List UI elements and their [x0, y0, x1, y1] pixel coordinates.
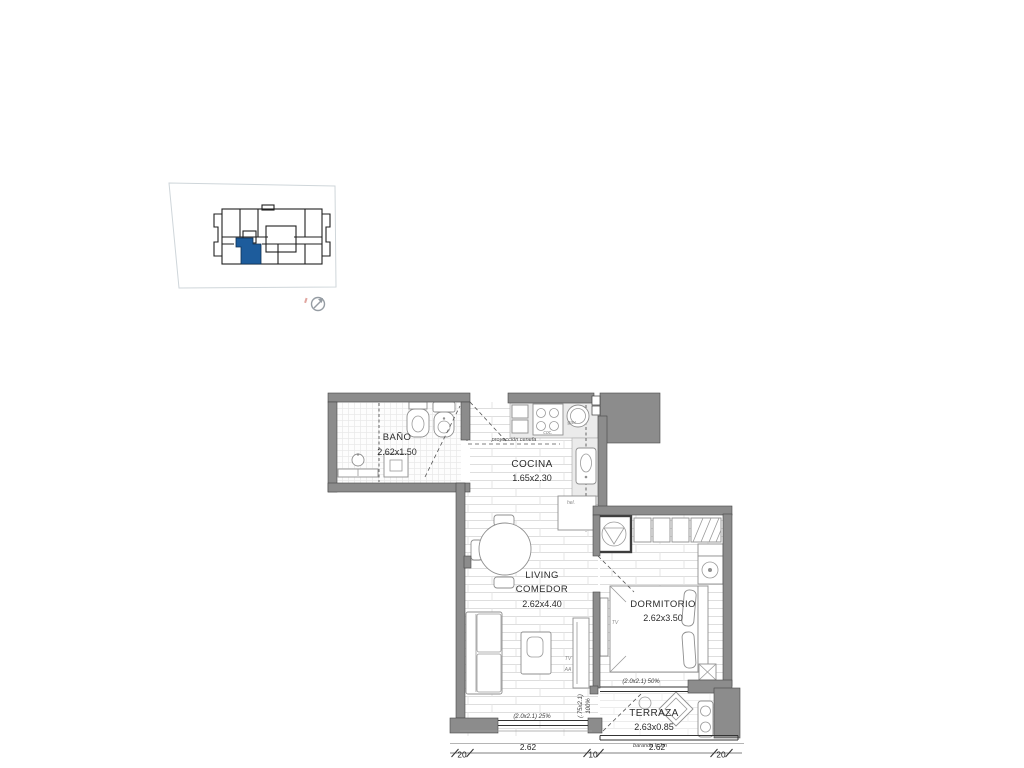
dorm-ac-unit-icon — [699, 664, 716, 680]
dim-10-center: 10 — [588, 750, 598, 760]
living-window-label: (2.0x2.1) 25% — [513, 714, 551, 720]
living-label-1: LIVING — [525, 570, 559, 581]
cocina-label: COCINA — [511, 459, 552, 470]
dim-262-right: 2.62 — [649, 742, 666, 752]
dormitorio-window-label: (2.0x2.1) 50% — [622, 679, 660, 685]
bathroom-sink-icon — [352, 454, 364, 466]
dormitorio-window — [600, 687, 688, 692]
ac-condenser-icon — [698, 701, 713, 737]
tv-label-dorm: TV — [612, 620, 619, 626]
bano-label: BAÑO — [383, 432, 412, 443]
nightstand-lamp-icon — [698, 556, 723, 584]
rotate-icon[interactable] — [312, 298, 325, 311]
key-plan — [169, 183, 336, 311]
tv-unit-icon — [573, 618, 589, 688]
dormitorio-fixtures — [597, 516, 723, 680]
key-plan-mark — [304, 298, 307, 303]
dim-262-left: 2.62 — [520, 742, 537, 752]
dorm-tv-icon — [600, 598, 608, 656]
terraza-door-pct-label: 100% — [586, 698, 592, 714]
floor-plan-page: BAÑO 2.62x1.50 COCINA 1.65x2.30 LIVING C… — [0, 0, 1024, 768]
dimension-strip: 20 2.62 10 2.62 20 — [450, 742, 742, 760]
terraza-label: TERRAZA — [629, 708, 678, 719]
stove-label: coc. — [543, 430, 552, 436]
living-label-2: COMEDOR — [516, 584, 568, 595]
living-dims: 2.62x4.40 — [522, 599, 562, 609]
sofa-icon — [466, 612, 502, 694]
cocina-dims: 1.65x2.30 — [512, 473, 552, 483]
fridge-label: hel. — [567, 500, 575, 506]
toilet-icon — [433, 402, 455, 437]
proyeccion-cenefa-label: proyección cenefa — [491, 437, 537, 443]
sink-label: gav. — [567, 420, 576, 426]
shaft-box — [592, 396, 600, 405]
key-plan-lot-boundary — [169, 183, 336, 288]
coffee-table-icon — [521, 632, 551, 674]
shaft-box — [592, 406, 600, 415]
shower-tray-icon — [384, 454, 408, 477]
dim-20-left: 20 — [457, 750, 467, 760]
bano-dims: 2.62x1.50 — [377, 447, 417, 457]
water-heater-icon — [597, 516, 631, 552]
fridge-icon — [558, 496, 596, 530]
tv-label-living: TV — [565, 656, 572, 662]
terraza-dims: 2.63x0.85 — [634, 722, 674, 732]
aa-label-living: AA — [564, 667, 572, 673]
dim-20-right: 20 — [716, 750, 726, 760]
floor-plan-canvas: BAÑO 2.62x1.50 COCINA 1.65x2.30 LIVING C… — [0, 0, 1024, 768]
dormitorio-dims: 2.62x3.50 — [643, 613, 683, 623]
terraza-door-size-label: (.75x2.1) — [578, 694, 584, 718]
kitchen-sink-unit-icon — [576, 448, 596, 484]
dormitorio-label: DORMITORIO — [630, 599, 696, 610]
